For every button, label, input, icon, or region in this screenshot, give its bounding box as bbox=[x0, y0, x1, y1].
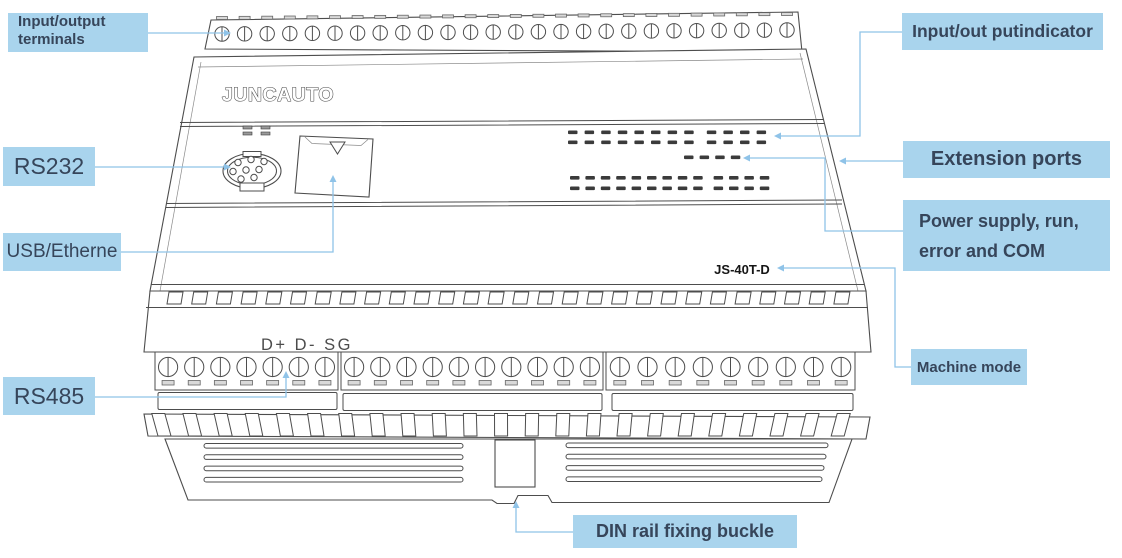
led-dash bbox=[707, 141, 717, 145]
callout-din-rail-buckle: DIN rail fixing buckle bbox=[573, 515, 797, 548]
callout-machine-mode: Machine mode bbox=[911, 349, 1027, 385]
led-dash bbox=[668, 141, 678, 145]
terminal-clamp bbox=[669, 13, 680, 16]
vent-square bbox=[463, 292, 479, 304]
led-dash bbox=[678, 176, 688, 180]
vent-square bbox=[266, 292, 282, 304]
callout-text: DIN rail fixing buckle bbox=[596, 521, 774, 542]
callout-text: Input/out putindicator bbox=[912, 21, 1093, 42]
led-dash bbox=[757, 141, 767, 145]
terminal-clamp bbox=[352, 16, 363, 19]
led-dash bbox=[757, 131, 767, 135]
terminal-clamp bbox=[736, 13, 747, 16]
led-dash bbox=[678, 187, 688, 191]
led-dash bbox=[700, 156, 710, 160]
led-dash bbox=[570, 187, 580, 191]
led-dash bbox=[744, 176, 754, 180]
terminal-clamp bbox=[646, 13, 657, 16]
led-dash bbox=[651, 141, 661, 145]
terminal-clamp bbox=[759, 13, 770, 16]
vent-square bbox=[513, 292, 529, 304]
led-dash bbox=[647, 176, 657, 180]
vent-square bbox=[686, 292, 702, 304]
plc-callout-diagram: JUNCAUTO bbox=[0, 0, 1122, 558]
vent-square bbox=[735, 292, 751, 304]
led-dash bbox=[693, 187, 703, 191]
terminal-clamp bbox=[623, 14, 634, 17]
led-dash bbox=[740, 131, 750, 135]
model-label: JS-40T-D bbox=[714, 262, 770, 277]
vent-square bbox=[636, 292, 652, 304]
led-dash bbox=[585, 187, 595, 191]
led-dash bbox=[760, 176, 770, 180]
terminal-clamp bbox=[697, 381, 709, 386]
terminal-clamp bbox=[558, 381, 570, 386]
terminal-clamp bbox=[691, 13, 702, 16]
terminal-clamp bbox=[293, 381, 305, 386]
callout-usb-ethernet: USB/Etherne bbox=[3, 233, 121, 271]
usb-ethernet-port bbox=[295, 136, 373, 197]
led-dash bbox=[570, 176, 580, 180]
led-dash bbox=[729, 176, 739, 180]
vent-slot bbox=[648, 414, 664, 437]
terminal-clamp bbox=[267, 381, 279, 386]
callout-rs485: RS485 bbox=[3, 377, 95, 415]
vent-square bbox=[414, 292, 430, 304]
led-dash bbox=[707, 131, 717, 135]
callout-io-indicator: Input/out putindicator bbox=[902, 13, 1103, 50]
led-dash bbox=[616, 187, 626, 191]
terminal-clamp bbox=[443, 15, 454, 18]
plc-device-illustration: JUNCAUTO bbox=[0, 0, 1122, 558]
led-dash bbox=[634, 131, 644, 135]
terminal-clamp bbox=[319, 381, 331, 386]
vent-square bbox=[340, 292, 356, 304]
led-dash bbox=[662, 187, 672, 191]
led-dash bbox=[715, 156, 725, 160]
led-dash bbox=[684, 131, 694, 135]
vent-slot bbox=[432, 414, 446, 437]
led-dash bbox=[601, 187, 611, 191]
callout-input-output-terminals: Input/output terminals bbox=[8, 13, 148, 52]
terminal-clamp bbox=[488, 15, 499, 18]
vent-slot bbox=[495, 414, 508, 437]
vent-square bbox=[562, 292, 578, 304]
led-dash bbox=[568, 141, 578, 145]
led-dash bbox=[684, 141, 694, 145]
terminal-clamp bbox=[614, 381, 626, 386]
vent-square bbox=[710, 292, 726, 304]
callout-text: USB/Etherne bbox=[7, 241, 118, 263]
terminal-clamp bbox=[532, 381, 544, 386]
led-dash bbox=[632, 187, 642, 191]
slant-vent-slots bbox=[152, 414, 850, 437]
terminal-clamp bbox=[669, 381, 681, 386]
vent-square bbox=[488, 292, 504, 304]
terminal-clamp bbox=[601, 14, 612, 17]
leader-din-rail bbox=[516, 508, 573, 532]
led-dash bbox=[651, 131, 661, 135]
vent-square bbox=[785, 292, 801, 304]
arrow-extension-ports bbox=[839, 158, 846, 165]
terminal-clamp bbox=[241, 381, 253, 386]
vent-square bbox=[192, 292, 208, 304]
terminal-clamp bbox=[479, 381, 491, 386]
terminal-clamp bbox=[188, 381, 200, 386]
vent-square bbox=[538, 292, 554, 304]
terminal-clamp bbox=[427, 381, 439, 386]
terminal-clamp bbox=[453, 381, 465, 386]
vent-square bbox=[241, 292, 257, 304]
terminal-clamp bbox=[375, 15, 386, 18]
vent-square bbox=[834, 292, 850, 304]
led-dash bbox=[634, 141, 644, 145]
terminal-clamp bbox=[556, 14, 567, 17]
terminal-clamp bbox=[642, 381, 654, 386]
callout-power-supply-leds: Power supply, run, error and COM bbox=[903, 200, 1110, 271]
led-dash bbox=[601, 141, 611, 145]
led-dash bbox=[616, 176, 626, 180]
terminal-clamp bbox=[584, 381, 596, 386]
vent-square bbox=[809, 292, 825, 304]
led-dash bbox=[714, 176, 724, 180]
terminal-clamp bbox=[808, 381, 820, 386]
terminal-clamp bbox=[307, 16, 318, 19]
terminal-clamp bbox=[505, 381, 517, 386]
vent-square bbox=[587, 292, 603, 304]
led-dash bbox=[723, 131, 733, 135]
vent-square bbox=[291, 292, 307, 304]
terminal-clamp bbox=[714, 13, 725, 16]
vent-square bbox=[315, 292, 331, 304]
terminal-clamp bbox=[420, 15, 431, 18]
led-dash bbox=[601, 176, 611, 180]
terminal-clamp bbox=[782, 13, 793, 16]
terminal-clamp bbox=[725, 381, 737, 386]
terminal-clamp bbox=[374, 381, 386, 386]
terminal-clamp bbox=[217, 17, 228, 20]
callout-text: Extension ports bbox=[931, 148, 1082, 171]
terminal-clamp bbox=[752, 381, 764, 386]
led-dash bbox=[714, 187, 724, 191]
terminal-clamp bbox=[578, 14, 589, 17]
led-dash bbox=[601, 131, 611, 135]
led-dash bbox=[662, 176, 672, 180]
callout-extension-ports: Extension ports bbox=[903, 141, 1110, 178]
vent-slot bbox=[617, 414, 632, 437]
vent-square bbox=[167, 292, 183, 304]
callout-text: RS485 bbox=[14, 383, 84, 410]
led-dash bbox=[632, 176, 642, 180]
din-rail-buckle bbox=[495, 440, 535, 487]
terminal-clamp bbox=[780, 381, 792, 386]
vent-slot bbox=[401, 414, 416, 437]
terminal-clamp bbox=[401, 381, 413, 386]
led-dash bbox=[693, 176, 703, 180]
terminal-clamp bbox=[465, 15, 476, 18]
vent-square bbox=[365, 292, 381, 304]
led-dash bbox=[668, 131, 678, 135]
led-dash bbox=[647, 187, 657, 191]
terminal-clamp bbox=[239, 16, 250, 19]
vent-square bbox=[216, 292, 232, 304]
vent-square bbox=[760, 292, 776, 304]
vent-square bbox=[661, 292, 677, 304]
led-dash bbox=[585, 176, 595, 180]
led-dash bbox=[568, 131, 578, 135]
terminal-label-strips bbox=[158, 393, 853, 411]
led-dash bbox=[744, 187, 754, 191]
vent-slot bbox=[556, 414, 570, 437]
device-body: JUNCAUTO bbox=[144, 12, 871, 504]
terminal-clamp bbox=[835, 381, 847, 386]
led-dash bbox=[723, 141, 733, 145]
led-dash bbox=[618, 131, 628, 135]
callout-text: error and COM bbox=[919, 236, 1045, 266]
callout-text: RS232 bbox=[14, 153, 84, 180]
terminal-clamp bbox=[284, 16, 295, 19]
vent-slot bbox=[525, 414, 538, 437]
callout-text: terminals bbox=[18, 31, 85, 49]
vent-square bbox=[389, 292, 405, 304]
callout-rs232: RS232 bbox=[3, 147, 95, 186]
led-dash bbox=[618, 141, 628, 145]
terminal-clamp bbox=[214, 381, 226, 386]
callout-text: Power supply, run, bbox=[919, 206, 1079, 236]
led-dash bbox=[684, 156, 694, 160]
terminal-clamp bbox=[262, 16, 273, 19]
vent-square bbox=[439, 292, 455, 304]
lower-terminal-blocks bbox=[155, 352, 855, 390]
terminal-clamp bbox=[510, 14, 521, 17]
led-dash bbox=[585, 131, 595, 135]
rs485-pin-labels: D+ D- SG bbox=[261, 336, 353, 354]
vent-slot bbox=[463, 414, 477, 437]
led-dash bbox=[729, 187, 739, 191]
terminal-clamp bbox=[330, 16, 341, 19]
terminal-clamp bbox=[348, 381, 360, 386]
vent-square bbox=[612, 292, 628, 304]
terminal-clamp bbox=[162, 381, 174, 386]
callout-text: Input/output bbox=[18, 13, 105, 31]
vent-slot bbox=[678, 414, 694, 437]
led-dash bbox=[731, 156, 741, 160]
vent-slot bbox=[308, 414, 324, 437]
vent-slot bbox=[370, 414, 385, 437]
callout-text: Machine mode bbox=[917, 359, 1021, 376]
led-dash bbox=[740, 141, 750, 145]
vent-slot bbox=[339, 414, 355, 437]
terminal-clamp bbox=[397, 15, 408, 18]
led-dash bbox=[585, 141, 595, 145]
terminal-clamp bbox=[533, 14, 544, 17]
vent-slot bbox=[586, 414, 601, 437]
led-dash bbox=[760, 187, 770, 191]
brand-logo: JUNCAUTO bbox=[222, 84, 334, 106]
